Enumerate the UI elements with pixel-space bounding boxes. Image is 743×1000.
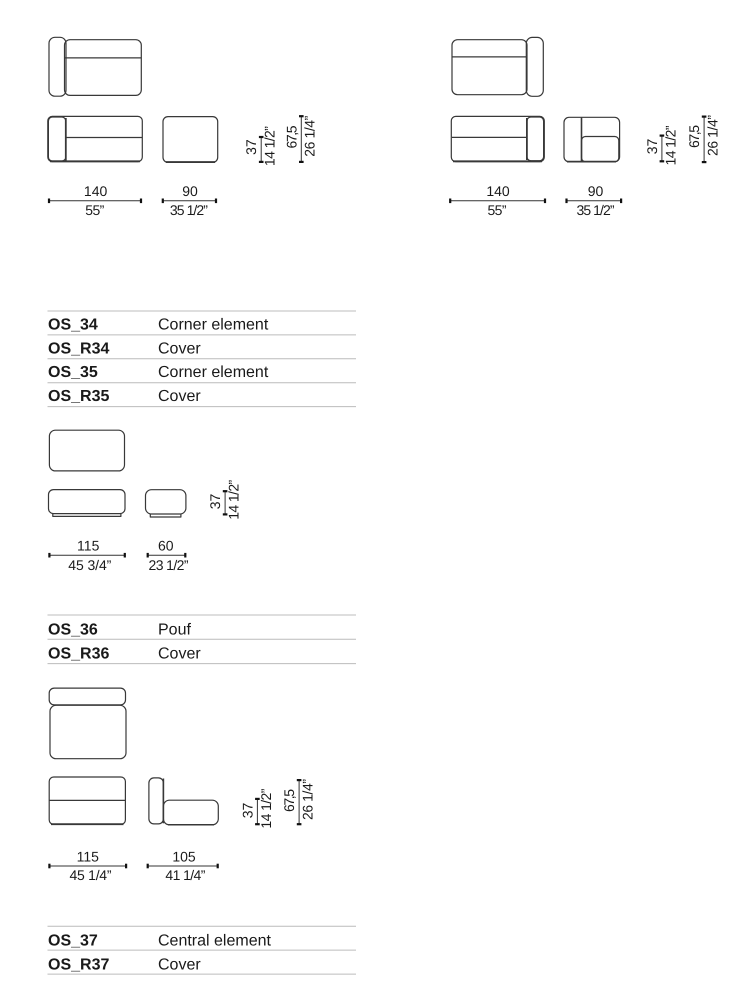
svg-text:67,5: 67,5 xyxy=(283,125,299,148)
svg-text:Central element: Central element xyxy=(158,932,272,949)
svg-text:OS_R37: OS_R37 xyxy=(48,956,109,973)
svg-text:14 1/2”: 14 1/2” xyxy=(226,479,242,519)
svg-text:Cover: Cover xyxy=(158,340,201,357)
svg-text:Cover: Cover xyxy=(158,646,201,663)
svg-text:26 1/4”: 26 1/4” xyxy=(705,115,721,156)
svg-text:90: 90 xyxy=(182,183,198,199)
svg-text:14 1/2”: 14 1/2” xyxy=(258,788,274,828)
svg-text:Cover: Cover xyxy=(158,956,201,973)
svg-text:67,5: 67,5 xyxy=(281,789,297,812)
svg-text:60: 60 xyxy=(158,538,174,554)
svg-text:115: 115 xyxy=(77,538,100,554)
svg-text:55”: 55” xyxy=(85,202,104,218)
svg-text:Cover: Cover xyxy=(158,388,201,405)
svg-text:45 1/4”: 45 1/4” xyxy=(70,867,112,883)
svg-text:41 1/4”: 41 1/4” xyxy=(165,867,205,883)
svg-text:115: 115 xyxy=(77,848,100,864)
svg-text:26 1/4”: 26 1/4” xyxy=(302,115,318,156)
svg-text:14 1/2”: 14 1/2” xyxy=(662,125,678,165)
svg-text:37: 37 xyxy=(239,803,255,819)
svg-text:OS_R34: OS_R34 xyxy=(48,340,109,357)
svg-text:45 3/4”: 45 3/4” xyxy=(68,557,111,573)
svg-text:37: 37 xyxy=(644,139,660,155)
svg-text:OS_34: OS_34 xyxy=(48,316,98,333)
svg-text:OS_35: OS_35 xyxy=(48,364,98,381)
svg-text:67,5: 67,5 xyxy=(686,125,702,148)
svg-text:OS_R35: OS_R35 xyxy=(48,388,109,405)
svg-text:OS_R36: OS_R36 xyxy=(48,646,109,663)
svg-text:37: 37 xyxy=(207,494,223,510)
svg-text:90: 90 xyxy=(588,183,604,199)
svg-text:Corner element: Corner element xyxy=(158,316,269,333)
svg-text:26 1/4”: 26 1/4” xyxy=(300,779,316,820)
svg-text:OS_36: OS_36 xyxy=(48,621,98,638)
svg-text:55”: 55” xyxy=(488,202,507,218)
svg-text:105: 105 xyxy=(172,848,196,864)
svg-text:140: 140 xyxy=(486,183,510,199)
svg-text:OS_37: OS_37 xyxy=(48,932,98,949)
svg-text:14 1/2”: 14 1/2” xyxy=(262,126,278,166)
svg-text:140: 140 xyxy=(84,183,108,199)
svg-text:Corner element: Corner element xyxy=(158,364,269,381)
svg-text:23 1/2”: 23 1/2” xyxy=(149,557,189,573)
svg-text:37: 37 xyxy=(243,139,259,155)
svg-text:35 1/2”: 35 1/2” xyxy=(577,202,615,218)
svg-text:Pouf: Pouf xyxy=(158,621,191,638)
svg-text:35 1/2”: 35 1/2” xyxy=(170,202,208,218)
